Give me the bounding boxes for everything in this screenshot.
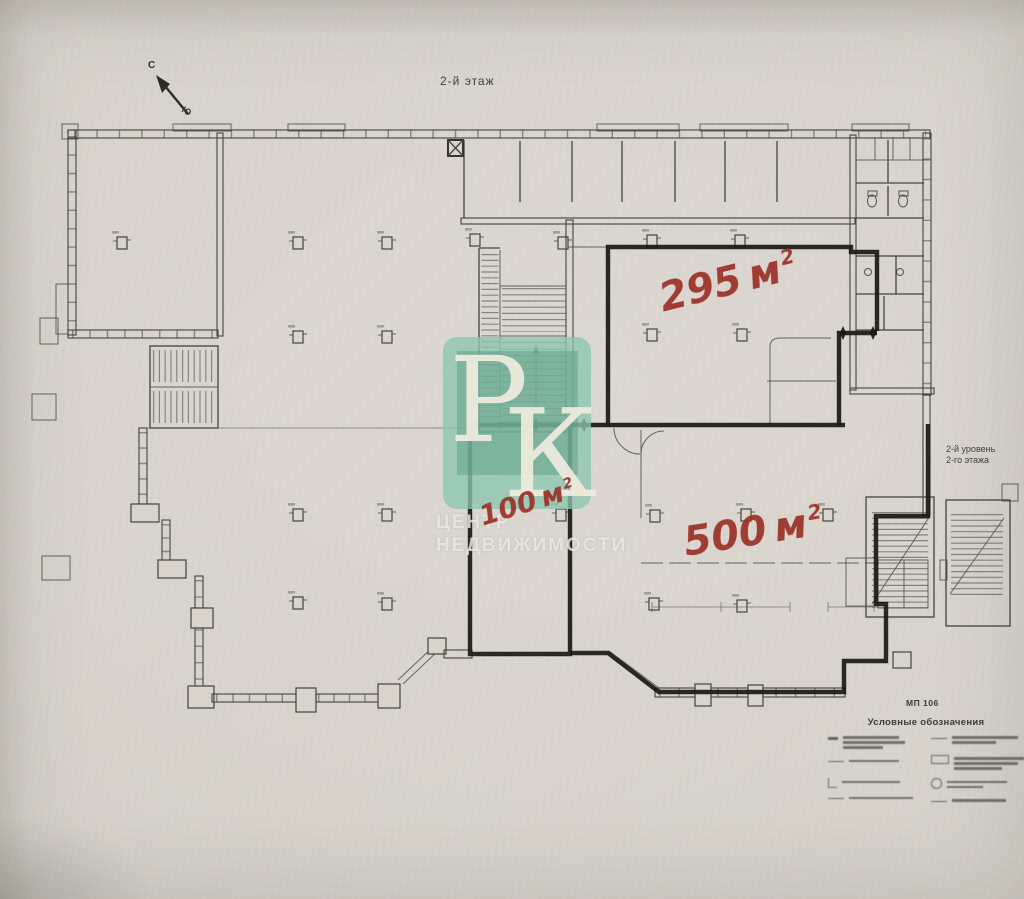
toilet-icons [865,191,909,276]
left-staircase [150,346,218,428]
shaft-icon [448,140,463,156]
legend-symbol [931,738,947,749]
legend-row [931,734,1024,749]
side-note: 2-й уровень 2-го этажа [946,444,995,466]
detached-staircase [940,484,1018,626]
legend-code: МП 106 [906,698,1024,708]
legend-title: Условные обозначения [828,717,1024,728]
compass: С Ю [138,60,202,128]
legend-symbol [828,761,844,772]
legend-symbol [931,755,949,764]
legend-row [931,778,1024,790]
side-note-line1: 2-й уровень [946,444,995,455]
legend-row [828,734,921,751]
floor-plan-scan: 2-й этаж С Ю 295м2 100м2 500м2 Р К ЦЕНТР… [0,0,1024,899]
legend-row [931,755,1024,772]
watermark-caption-line2: НЕДВИЖИМОСТИ [436,534,627,557]
legend-symbol [828,778,837,788]
legend: МП 106 Условные обозначения [828,698,1024,818]
legend-row [828,757,921,772]
page-title: 2-й этаж [440,74,495,88]
side-note-line2: 2-го этажа [946,455,995,466]
legend-symbol [828,798,844,809]
legend-symbol [828,737,838,740]
area-500-unit: м [771,501,810,552]
legend-row [828,794,921,809]
legend-symbol [931,801,947,812]
legend-symbol [931,778,942,789]
legend-row [828,778,921,788]
compass-north-label: С [148,60,155,71]
legend-row [931,797,1024,812]
